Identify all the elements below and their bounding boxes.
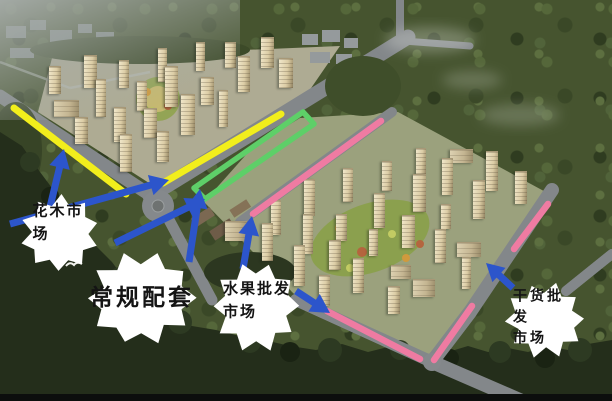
aerial-masterplan-screenshot: 花木市 场 常规配套 水果批发 市场 干货批发 市场 <box>0 0 612 401</box>
callout-fruit-wholesale-market-label: 水果批发 市场 <box>223 279 291 324</box>
callout-dried-goods-wholesale-market-label: 干货批发 市场 <box>513 286 579 349</box>
callout-general-amenities-label: 常规配套 <box>90 280 194 315</box>
bottom-black-strip <box>0 394 612 401</box>
callout-flower-market-label: 花木市 场 <box>32 201 83 246</box>
